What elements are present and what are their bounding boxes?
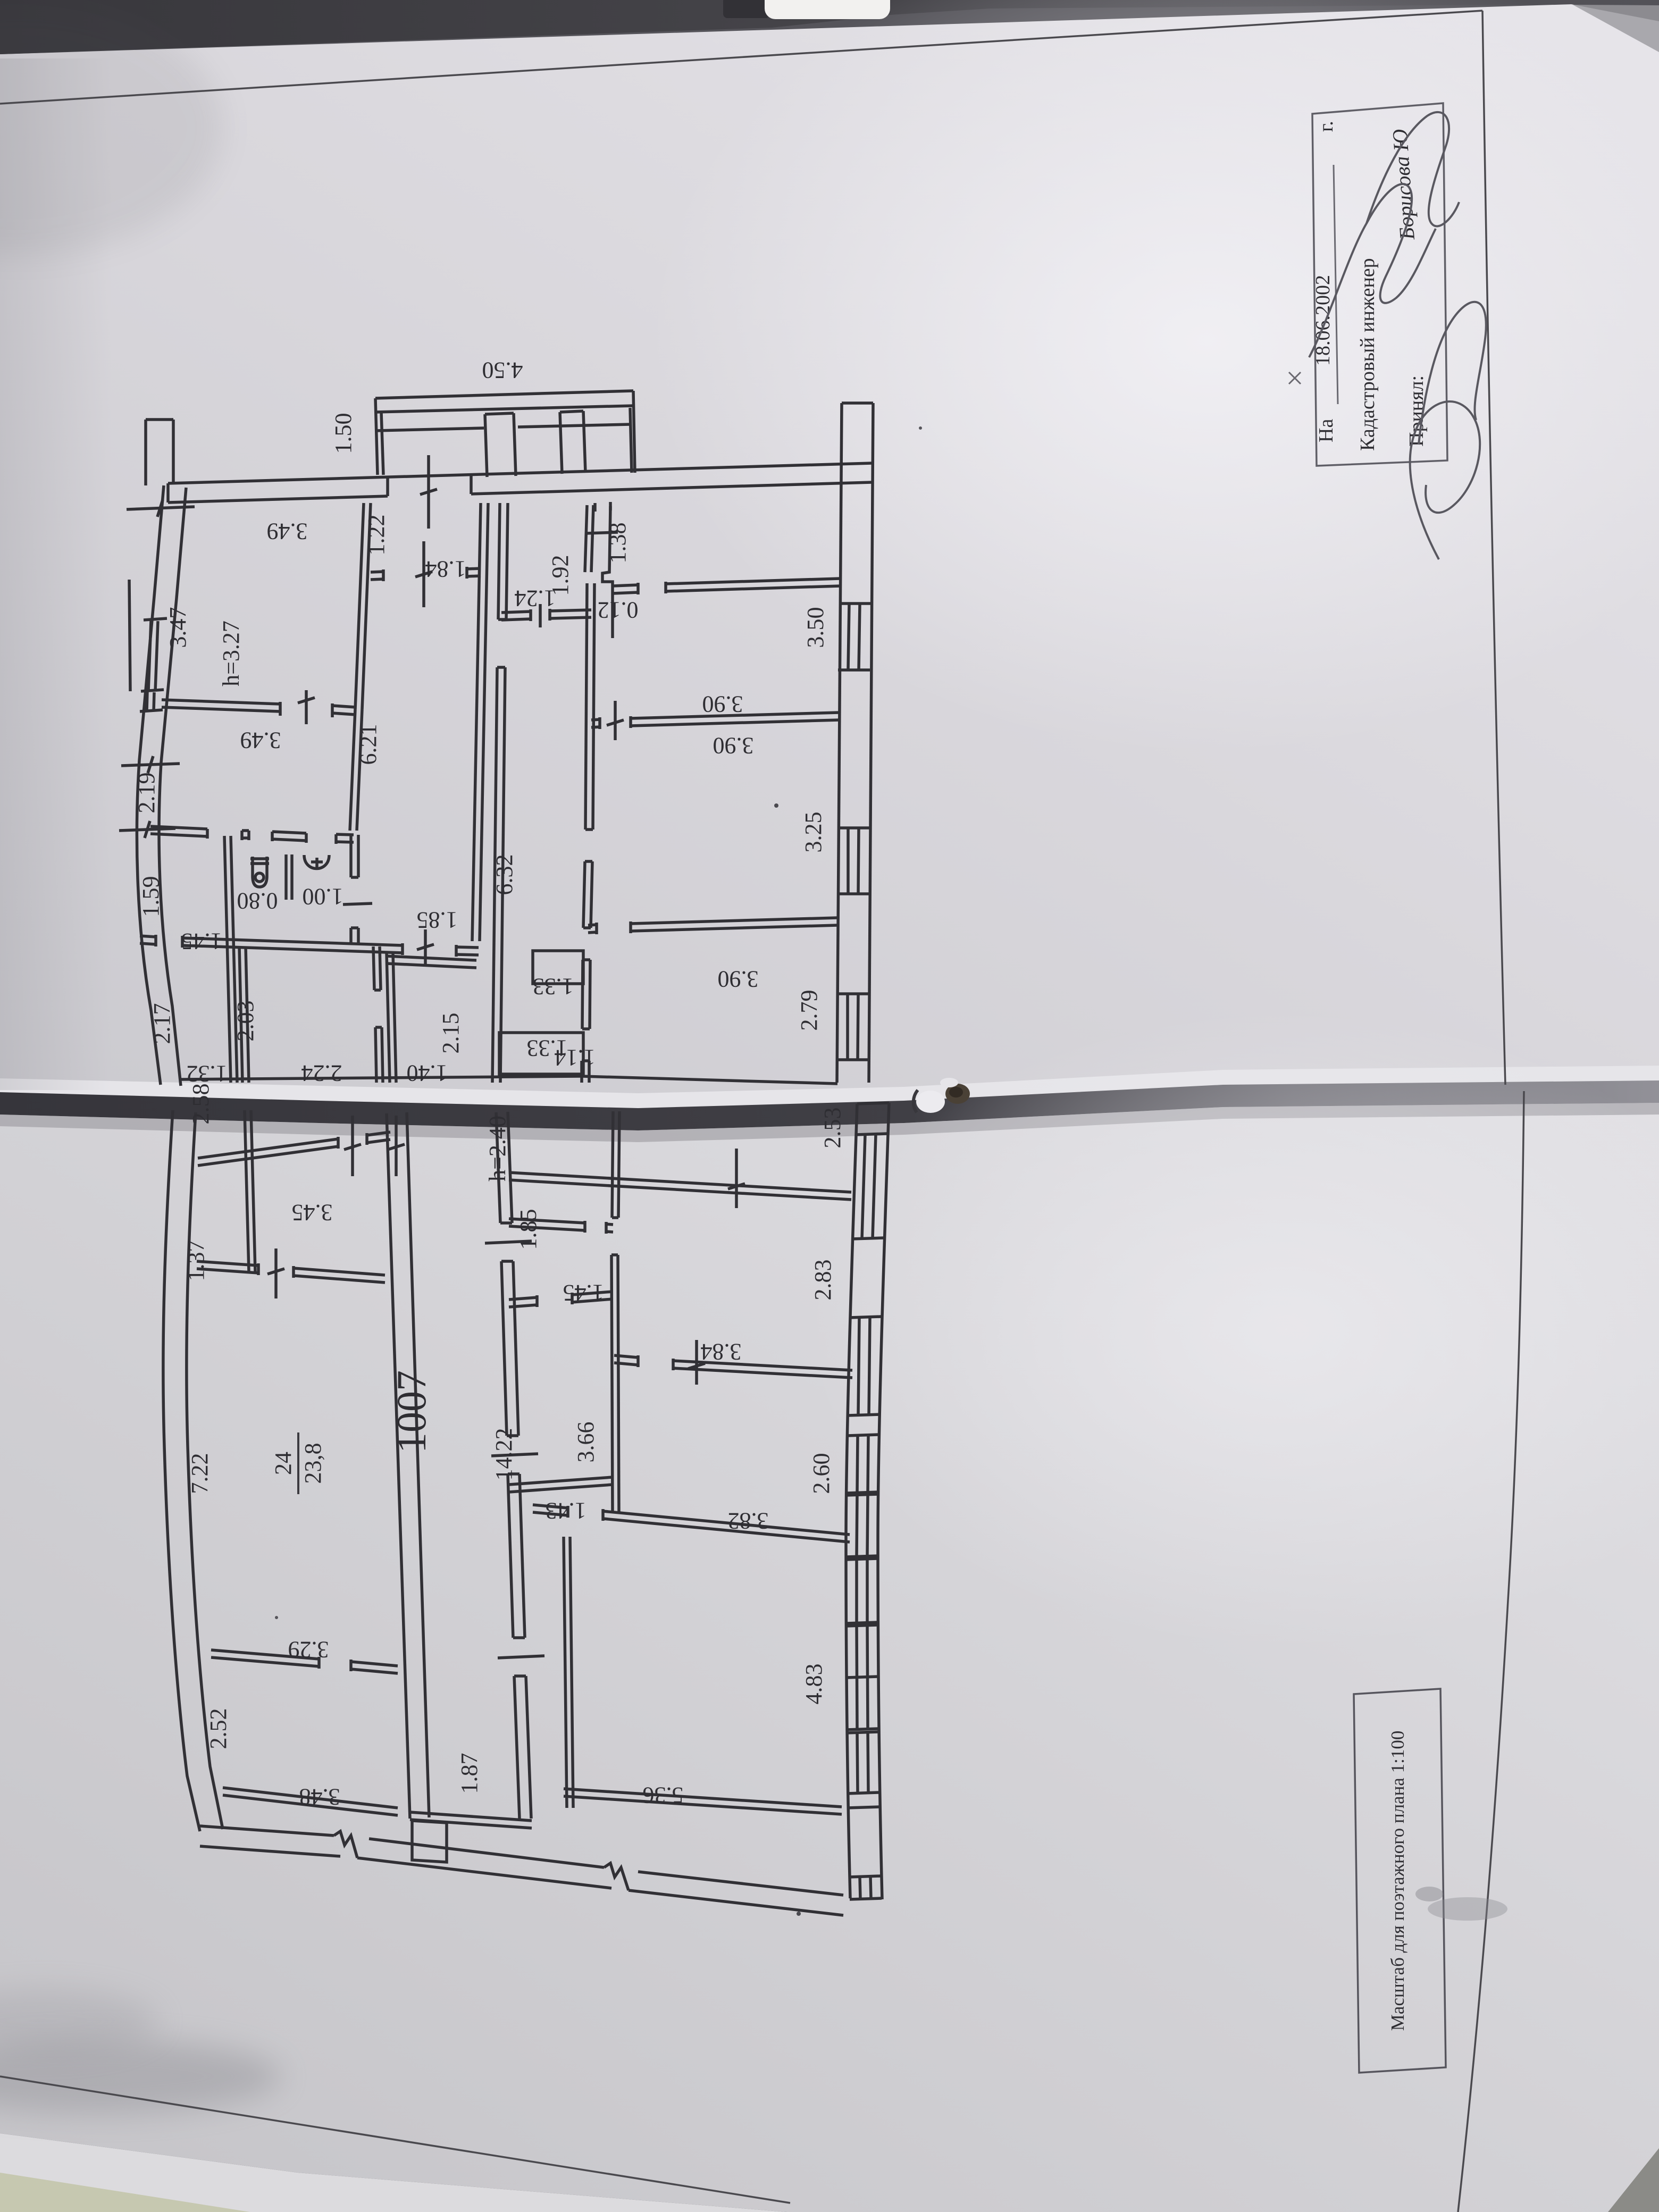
svg-text:4.50: 4.50: [482, 357, 523, 383]
svg-text:h=3.27: h=3.27: [218, 621, 244, 686]
svg-text:2.58: 2.58: [188, 1084, 214, 1125]
svg-text:2.52: 2.52: [205, 1708, 231, 1749]
svg-text:5.36: 5.36: [643, 1782, 684, 1808]
svg-text:3.25: 3.25: [800, 812, 826, 853]
svg-text:1.37: 1.37: [183, 1241, 209, 1281]
svg-text:1.43: 1.43: [546, 1498, 586, 1524]
svg-text:3.90: 3.90: [702, 691, 743, 717]
svg-text:1.38: 1.38: [605, 523, 631, 564]
svg-text:h=2.40: h=2.40: [484, 1116, 510, 1182]
svg-text:Кадастровый инженер: Кадастровый инженер: [1356, 258, 1379, 451]
svg-text:18.06.2002: 18.06.2002: [1312, 275, 1334, 366]
svg-text:0.80: 0.80: [237, 888, 278, 914]
svg-text:1.85: 1.85: [515, 1209, 541, 1250]
svg-text:1.24: 1.24: [515, 585, 556, 611]
svg-text:3.29: 3.29: [288, 1637, 329, 1663]
svg-text:1.22: 1.22: [363, 515, 389, 556]
svg-text:3.66: 3.66: [573, 1422, 599, 1463]
svg-text:г.: г.: [1315, 121, 1337, 132]
svg-text:1.85: 1.85: [417, 907, 458, 933]
svg-text:3.47: 3.47: [165, 607, 191, 648]
svg-text:1.32: 1.32: [187, 1061, 228, 1087]
svg-text:2.60: 2.60: [808, 1453, 834, 1494]
svg-text:3.48: 3.48: [299, 1784, 340, 1810]
svg-text:3.50: 3.50: [802, 607, 828, 648]
svg-text:2.15: 2.15: [438, 1013, 464, 1054]
svg-text:1.59: 1.59: [138, 876, 164, 917]
svg-text:2.24: 2.24: [301, 1060, 342, 1086]
svg-text:1.50: 1.50: [330, 413, 356, 454]
svg-text:7.22: 7.22: [187, 1453, 213, 1494]
svg-text:1.14: 1.14: [555, 1045, 596, 1071]
svg-text:1.40: 1.40: [407, 1060, 448, 1086]
svg-text:2.53: 2.53: [819, 1108, 845, 1149]
svg-text:Масштаб для поэтажного плана 1: Масштаб для поэтажного плана 1:100: [1387, 1731, 1408, 2031]
svg-text:3.49: 3.49: [240, 727, 281, 753]
svg-text:На: На: [1315, 419, 1337, 442]
svg-text:2.17: 2.17: [149, 1003, 175, 1044]
svg-text:1.33: 1.33: [533, 974, 574, 1000]
svg-text:3.84: 3.84: [701, 1339, 742, 1365]
svg-text:6.21: 6.21: [355, 724, 381, 765]
svg-text:2.79: 2.79: [796, 990, 822, 1031]
svg-text:1.45: 1.45: [563, 1280, 604, 1306]
svg-text:1.45: 1.45: [181, 928, 222, 954]
svg-text:1.84: 1.84: [425, 556, 466, 582]
svg-text:Принял:: Принял:: [1405, 375, 1428, 447]
svg-text:3.90: 3.90: [713, 733, 754, 759]
svg-text:3.82: 3.82: [728, 1508, 769, 1534]
svg-text:2.83: 2.83: [810, 1260, 836, 1301]
svg-text:0.12: 0.12: [598, 597, 639, 623]
svg-text:1.87: 1.87: [456, 1753, 482, 1794]
svg-text:6.32: 6.32: [491, 854, 517, 895]
svg-text:2.19: 2.19: [133, 773, 160, 814]
svg-text:3.49: 3.49: [267, 518, 308, 544]
svg-text:23,8: 23,8: [300, 1443, 326, 1484]
svg-text:4.83: 4.83: [801, 1664, 827, 1705]
svg-text:14.22: 14.22: [491, 1428, 517, 1481]
svg-text:3.90: 3.90: [718, 966, 759, 992]
svg-text:24: 24: [270, 1452, 296, 1475]
svg-text:1007: 1007: [388, 1370, 434, 1453]
svg-text:3.45: 3.45: [292, 1200, 333, 1226]
svg-text:2.03: 2.03: [232, 1001, 258, 1042]
svg-text:1.00: 1.00: [303, 884, 343, 910]
